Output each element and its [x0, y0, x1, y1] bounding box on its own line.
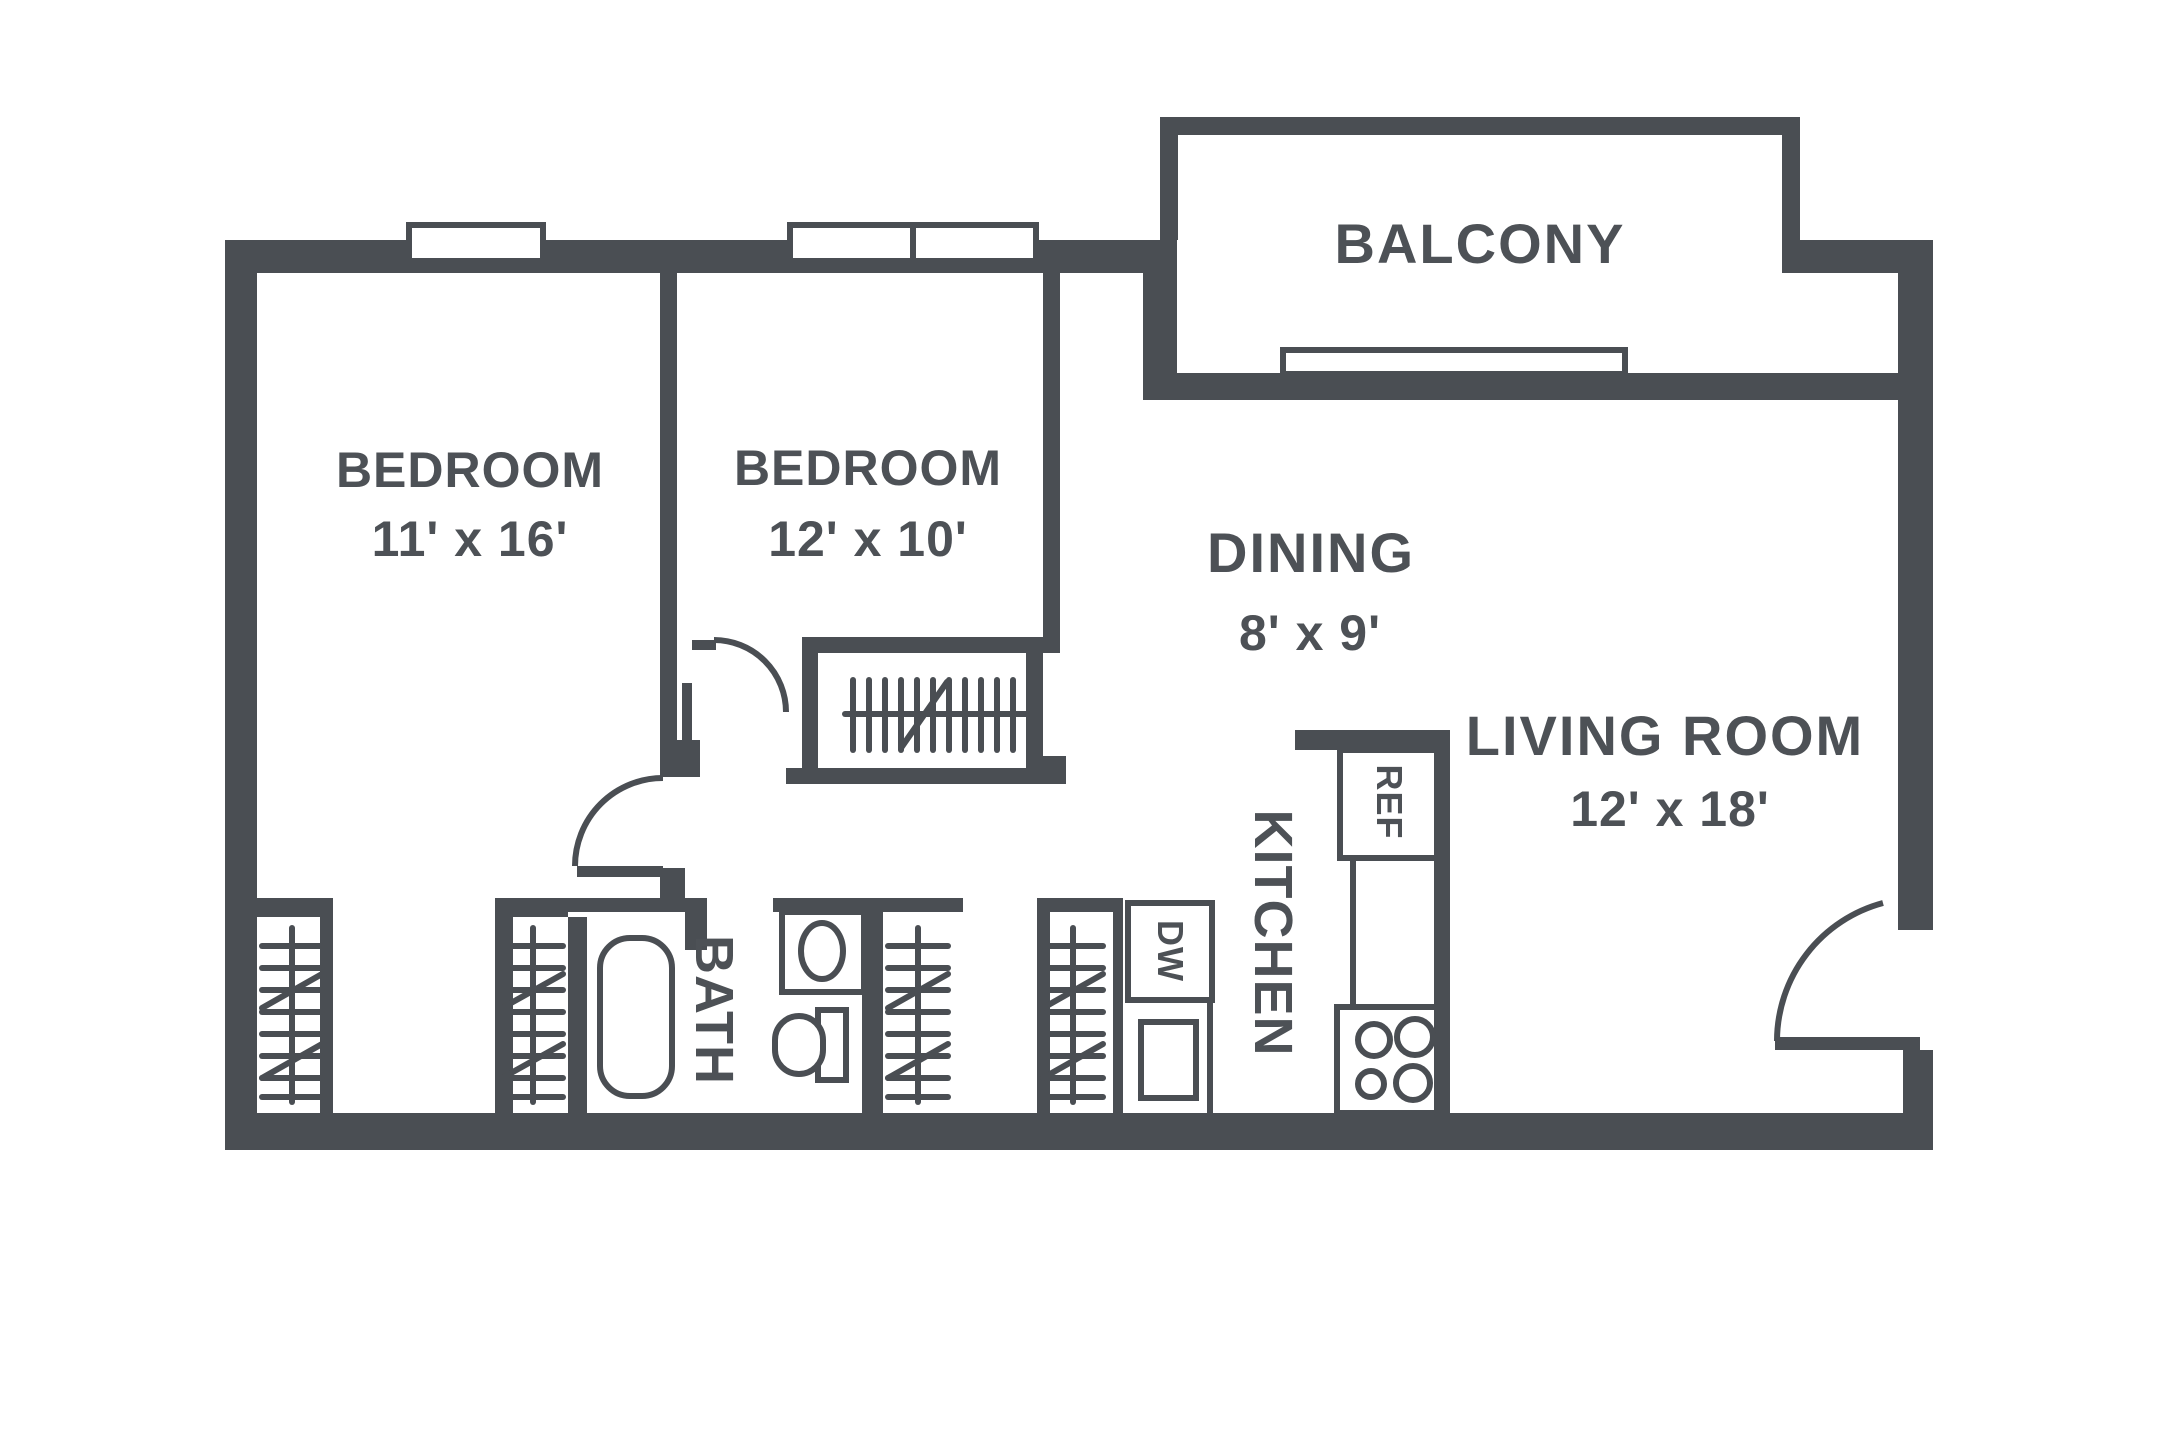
counter [1353, 858, 1437, 1007]
sliding-door [1283, 350, 1625, 374]
bedroom2-label: BEDROOM [734, 440, 1002, 496]
closet-wall [1037, 898, 1123, 912]
window [409, 225, 543, 261]
bathtub [600, 938, 672, 1096]
stove-burner [1397, 1019, 1433, 1055]
closet-wall [568, 917, 587, 1113]
wall-segment [1782, 240, 1933, 273]
living-room-label: LIVING ROOM [1466, 704, 1864, 767]
wall-bedrooms-divider [660, 273, 677, 740]
balcony-wall [1782, 117, 1800, 240]
wall-segment [1903, 1050, 1933, 1120]
floor-plan-page: BALCONY BEDROOM 11' x 16' BEDROOM 12' x … [0, 0, 2160, 1440]
wall-segment [225, 1113, 1933, 1150]
balcony-label: BALCONY [1335, 212, 1626, 275]
window [790, 225, 913, 261]
closet-wall [495, 898, 568, 917]
door-arcs [575, 640, 1883, 1041]
closet-wall [1026, 640, 1043, 768]
door-swing-arc [714, 640, 786, 712]
door-jamb [660, 868, 685, 900]
toilet-bowl [775, 1016, 823, 1074]
entry-door-swing-arc [1777, 903, 1883, 1041]
refrigerator-label: REF [1369, 765, 1410, 840]
door-leaf [577, 866, 663, 877]
closet-hanging-rod [845, 680, 1026, 750]
wall-segment [1898, 240, 1933, 930]
bedroom1-dims: 11' x 16' [372, 511, 569, 567]
kitchen-label: KITCHEN [1243, 810, 1303, 1057]
closet-hanging-rod [888, 928, 948, 1102]
dining-dims: 8' x 9' [1239, 605, 1381, 661]
bath-label: BATH [684, 935, 744, 1085]
balcony-wall [1143, 273, 1177, 378]
door-jamb [660, 740, 700, 777]
balcony-wall [1160, 117, 1178, 240]
balcony-wall [1160, 117, 1800, 135]
closet-wall [1113, 912, 1123, 1113]
living-room-dims: 12' x 18' [1570, 781, 1770, 837]
entry-door-leaf [1775, 1037, 1920, 1050]
closet-wall [255, 898, 333, 917]
bedroom2-dims: 12' x 10' [768, 511, 968, 567]
walls [225, 117, 1933, 1150]
closet-hanging-rod [1043, 928, 1103, 1102]
closet-hanging-rod [262, 928, 322, 1102]
cabinet [1141, 1022, 1196, 1098]
sink-basin [801, 923, 843, 979]
closet-wall [802, 653, 818, 770]
door-leaf [692, 640, 716, 650]
window [913, 225, 1036, 261]
hall-wall-cap [1030, 756, 1066, 784]
labels: BALCONY BEDROOM 11' x 16' BEDROOM 12' x … [336, 212, 1864, 1085]
floor-plan-canvas: BALCONY BEDROOM 11' x 16' BEDROOM 12' x … [0, 0, 2160, 1440]
bedroom1-label: BEDROOM [336, 442, 604, 498]
closet-wall [802, 637, 1060, 653]
dining-label: DINING [1207, 521, 1415, 584]
dishwasher-label: DW [1150, 920, 1191, 982]
wall-bedroom2-dining [1043, 273, 1060, 640]
door-swing-arc [575, 778, 663, 866]
stove-burner [1358, 1024, 1390, 1056]
wall-under-balcony [1143, 373, 1898, 400]
stove-burner [1396, 1066, 1430, 1100]
stove-burner [1358, 1071, 1384, 1097]
hall-wall [786, 768, 1030, 784]
wall-segment [225, 240, 257, 1150]
door-leaf [682, 683, 692, 760]
